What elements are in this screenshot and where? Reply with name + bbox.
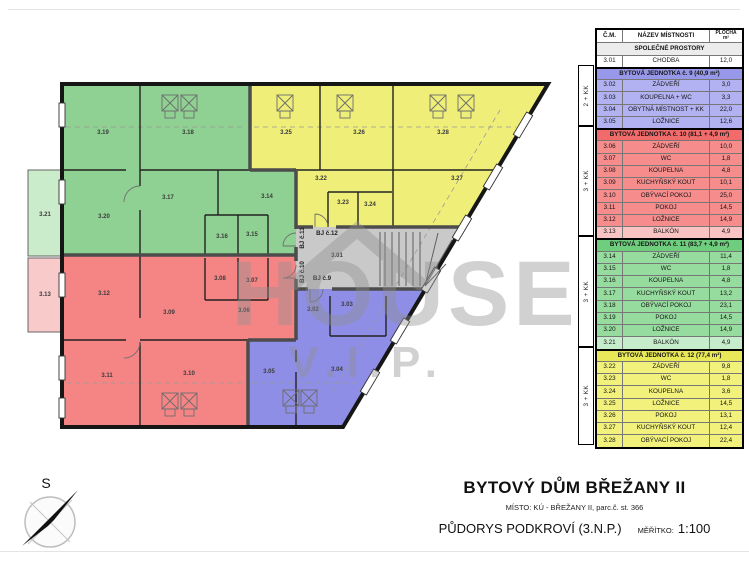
room-name: KUCHYŇSKÝ KOUT: [623, 178, 710, 189]
room-area: 13,2: [710, 288, 742, 300]
room-name: OBYTNÁ MÍSTNOST + KK: [623, 105, 710, 116]
room-legend-table: Č.M.NÁZEV MÍSTNOSTIPLOCHAm²SPOLEČNÉ PROS…: [595, 28, 744, 449]
room-name: BALKÓN: [623, 337, 710, 349]
title-block: BYTOVÝ DŮM BŘEŽANY II MÍSTO: KÚ - BŘEŽAN…: [402, 478, 747, 536]
room-name: WC: [623, 154, 710, 165]
room-id: 3.16: [597, 276, 623, 287]
unit-type-label: 2 + KK: [578, 65, 594, 126]
room-area: 22,4: [710, 435, 742, 447]
room-id: 3.07: [597, 154, 623, 165]
drawing-name: PŮDORYS PODKROVÍ (3.N.P.): [439, 521, 622, 536]
sheet-bottom-rule: [0, 551, 749, 552]
room-area: 1,8: [710, 374, 742, 385]
room-id: 3.22: [597, 362, 623, 373]
room-label-3.21: 3.21: [39, 212, 51, 218]
room-label-3.09: 3.09: [163, 310, 175, 316]
room-id: 3.01: [597, 56, 623, 67]
room-name: KOUPELNA + WC: [623, 92, 710, 104]
floor-plan: 3.013.023.033.043.053.063.073.083.093.10…: [0, 0, 578, 470]
legend-row-3.13: 3.13BALKÓN4,9: [597, 226, 742, 238]
room-id: 3.26: [597, 411, 623, 422]
room-id: 3.24: [597, 386, 623, 398]
room-area: 13,1: [710, 411, 742, 422]
room-label-3.11: 3.11: [101, 373, 113, 379]
room-label-3.27: 3.27: [451, 176, 463, 182]
project-location: MÍSTO: KÚ - BŘEŽANY II, parc.č. st. 366: [402, 503, 747, 512]
room-area: 14,9: [710, 325, 742, 336]
legend-row-3.04: 3.04OBYTNÁ MÍSTNOST + KK22,0: [597, 104, 742, 116]
room-id: 3.02: [597, 80, 623, 91]
col-header-area: PLOCHAm²: [710, 30, 742, 42]
room-area: 1,8: [710, 154, 742, 165]
room-name: WC: [623, 374, 710, 385]
room-id: 3.04: [597, 105, 623, 116]
room-name: KUCHYŇSKÝ KOUT: [623, 288, 710, 300]
room-name: KOUPELNA: [623, 166, 710, 177]
legend-row-3.08: 3.08KOUPELNA4,8: [597, 165, 742, 177]
room-area: 14,5: [710, 313, 742, 324]
room-area: 4,8: [710, 276, 742, 287]
section-title: BYTOVÁ JEDNOTKA č. 12 (77,4 m²): [597, 351, 742, 361]
room-name: KOUPELNA: [623, 386, 710, 398]
room-name: ZÁDVEŘÍ: [623, 141, 710, 153]
room-area: 12,6: [710, 117, 742, 128]
room-area: 10,0: [710, 141, 742, 153]
watermark-text-1: HOUSE: [231, 243, 578, 345]
room-name: LOŽNICE: [623, 399, 710, 410]
legend-row-3.26: 3.26POKOJ13,1: [597, 410, 742, 422]
room-id: 3.11: [597, 203, 623, 214]
legend-row-3.03: 3.03KOUPELNA + WC3,3: [597, 91, 742, 104]
section-title: SPOLEČNÉ PROSTORY: [597, 43, 742, 55]
room-id: 3.21: [597, 337, 623, 349]
legend-row-3.12: 3.12LOŽNICE14,9: [597, 214, 742, 226]
room-id: 3.27: [597, 423, 623, 434]
project-title: BYTOVÝ DŮM BŘEŽANY II: [402, 478, 747, 498]
room-name: LOŽNICE: [623, 215, 710, 226]
room-area: 4,9: [710, 337, 742, 349]
unit-type-label: 3 + KK: [578, 347, 594, 445]
room-label-3.22: 3.22: [315, 176, 327, 182]
legend-row-3.09: 3.09KUCHYŇSKÝ KOUT10,1: [597, 177, 742, 189]
section-title: BYTOVÁ JEDNOTKA č. 9 (40,9 m²): [597, 69, 742, 79]
legend-row-3.06: 3.06ZÁDVEŘÍ10,0: [597, 140, 742, 153]
legend-row-3.02: 3.02ZÁDVEŘÍ3,0: [597, 79, 742, 91]
room-id: 3.23: [597, 374, 623, 385]
room-id: 3.17: [597, 288, 623, 300]
room-id: 3.13: [597, 227, 623, 238]
room-area: 23,1: [710, 301, 742, 312]
legend-row-3.16: 3.16KOUPELNA4,8: [597, 275, 742, 287]
room-area: 25,0: [710, 190, 742, 202]
legend-header-row: Č.M.NÁZEV MÍSTNOSTIPLOCHAm²: [597, 30, 742, 42]
col-header-name: NÁZEV MÍSTNOSTI: [623, 30, 710, 42]
legend-row-3.20: 3.20LOŽNICE14,9: [597, 324, 742, 336]
room-id: 3.25: [597, 399, 623, 410]
legend-row-3.19: 3.19POKOJ14,5: [597, 312, 742, 324]
room-id: 3.10: [597, 190, 623, 202]
room-label-3.12: 3.12: [98, 291, 110, 297]
room-name: KUCHYŇSKÝ KOUT: [623, 423, 710, 434]
room-name: POKOJ: [623, 313, 710, 324]
legend-row-3.24: 3.24KOUPELNA3,6: [597, 385, 742, 398]
room-id: 3.14: [597, 252, 623, 263]
room-area: 11,4: [710, 252, 742, 263]
room-name: ZÁDVEŘÍ: [623, 252, 710, 263]
room-name: OBÝVACÍ POKOJ: [623, 301, 710, 312]
unit-type-text: 3 + KK: [583, 281, 590, 302]
legend-row-3.27: 3.27KUCHYŇSKÝ KOUT12,4: [597, 422, 742, 434]
room-area: 14,9: [710, 215, 742, 226]
unit-type-text: 2 + KK: [583, 85, 590, 106]
room-id: 3.05: [597, 117, 623, 128]
room-label-3.19: 3.19: [97, 130, 109, 136]
col-header-id: Č.M.: [597, 30, 623, 42]
room-area: 3,3: [710, 92, 742, 104]
room-name: LOŽNICE: [623, 117, 710, 128]
room-id: 3.03: [597, 92, 623, 104]
room-label-3.13: 3.13: [39, 292, 51, 298]
room-name: OBÝVACÍ POKOJ: [623, 435, 710, 447]
compass-rose: S: [10, 476, 94, 560]
room-label-3.14: 3.14: [261, 194, 273, 200]
room-area: 14,5: [710, 399, 742, 410]
legend-row-3.01: 3.01CHODBA12,0: [597, 55, 742, 67]
room-name: KOUPELNA: [623, 276, 710, 287]
room-label-3.23: 3.23: [337, 200, 349, 206]
room-area: 22,0: [710, 105, 742, 116]
room-id: 3.20: [597, 325, 623, 336]
room-id: 3.18: [597, 301, 623, 312]
legend-row-3.21: 3.21BALKÓN4,9: [597, 336, 742, 349]
room-label-3.05: 3.05: [263, 369, 275, 375]
room-name: ZÁDVEŘÍ: [623, 362, 710, 373]
unit-type-text: 3 + KK: [583, 170, 590, 191]
legend-section-header: BYTOVÁ JEDNOTKA č. 11 (83,7 + 4,9 m²): [597, 238, 742, 251]
room-name: CHODBA: [623, 56, 710, 67]
room-name: POKOJ: [623, 203, 710, 214]
legend-section-header: BYTOVÁ JEDNOTKA č. 10 (81,1 + 4,9 m²): [597, 128, 742, 140]
room-label-3.24: 3.24: [364, 202, 376, 208]
room-id: 3.09: [597, 178, 623, 189]
section-title: BYTOVÁ JEDNOTKA č. 10 (81,1 + 4,9 m²): [597, 130, 742, 140]
room-area: 4,9: [710, 227, 742, 238]
room-name: OBÝVACÍ POKOJ: [623, 190, 710, 202]
legend-row-3.28: 3.28OBÝVACÍ POKOJ22,4: [597, 434, 742, 447]
legend-section-header: BYTOVÁ JEDNOTKA č. 9 (40,9 m²): [597, 67, 742, 79]
section-title: BYTOVÁ JEDNOTKA č. 11 (83,7 + 4,9 m²): [597, 240, 742, 251]
room-name: POKOJ: [623, 411, 710, 422]
legend-section-header: BYTOVÁ JEDNOTKA č. 12 (77,4 m²): [597, 349, 742, 361]
legend-row-3.07: 3.07WC1,8: [597, 153, 742, 165]
room-area: 9,8: [710, 362, 742, 373]
legend-row-3.10: 3.10OBÝVACÍ POKOJ25,0: [597, 189, 742, 202]
room-area: 14,5: [710, 203, 742, 214]
room-name: BALKÓN: [623, 227, 710, 238]
watermark-text-2: V.I.P.: [289, 338, 447, 387]
room-label-3.10: 3.10: [183, 371, 195, 377]
room-label-3.08: 3.08: [214, 276, 226, 282]
drawing-scale: MĚŘÍTKO: 1:100: [638, 521, 711, 536]
room-name: ZÁDVEŘÍ: [623, 80, 710, 91]
room-area: 3,6: [710, 386, 742, 398]
room-area: 12,0: [710, 56, 742, 67]
room-id: 3.28: [597, 435, 623, 447]
room-label-3.17: 3.17: [162, 195, 174, 201]
legend-row-3.18: 3.18OBÝVACÍ POKOJ23,1: [597, 300, 742, 312]
legend-row-3.17: 3.17KUCHYŇSKÝ KOUT13,2: [597, 287, 742, 300]
room-label-3.20: 3.20: [98, 214, 110, 220]
legend-section-header: SPOLEČNÉ PROSTORY: [597, 42, 742, 55]
room-name: LOŽNICE: [623, 325, 710, 336]
legend-row-3.05: 3.05LOŽNICE12,6: [597, 116, 742, 128]
room-label-3.25: 3.25: [280, 130, 292, 136]
legend-row-3.11: 3.11POKOJ14,5: [597, 202, 742, 214]
legend-row-3.14: 3.14ZÁDVEŘÍ11,4: [597, 251, 742, 263]
room-name: WC: [623, 264, 710, 275]
scale-label: MĚŘÍTKO:: [638, 526, 674, 535]
scale-value: 1:100: [678, 521, 711, 536]
room-label-3.26: 3.26: [353, 130, 365, 136]
legend-row-3.22: 3.22ZÁDVEŘÍ9,8: [597, 361, 742, 373]
room-area: 12,4: [710, 423, 742, 434]
unit-type-text: 3 + KK: [583, 385, 590, 406]
room-area: 3,0: [710, 80, 742, 91]
room-label-3.16: 3.16: [216, 234, 228, 240]
room-area: 1,8: [710, 264, 742, 275]
room-area: 10,1: [710, 178, 742, 189]
room-id: 3.12: [597, 215, 623, 226]
room-id: 3.08: [597, 166, 623, 177]
door-label-bj-č.12: BJ č.12: [316, 230, 338, 237]
room-id: 3.06: [597, 141, 623, 153]
drawing-sheet: 3.013.023.033.043.053.063.073.083.093.10…: [0, 0, 749, 562]
room-area: 4,8: [710, 166, 742, 177]
legend-row-3.25: 3.25LOŽNICE14,5: [597, 398, 742, 410]
room-id: 3.15: [597, 264, 623, 275]
room-label-3.18: 3.18: [182, 130, 194, 136]
room-label-3.15: 3.15: [246, 232, 258, 238]
unit-type-label: 3 + KK: [578, 236, 594, 347]
room-id: 3.19: [597, 313, 623, 324]
north-label: S: [41, 476, 50, 491]
legend-row-3.23: 3.23WC1,8: [597, 373, 742, 385]
legend-row-3.15: 3.15WC1,8: [597, 263, 742, 275]
room-label-3.28: 3.28: [437, 130, 449, 136]
unit-type-label: 3 + KK: [578, 126, 594, 236]
